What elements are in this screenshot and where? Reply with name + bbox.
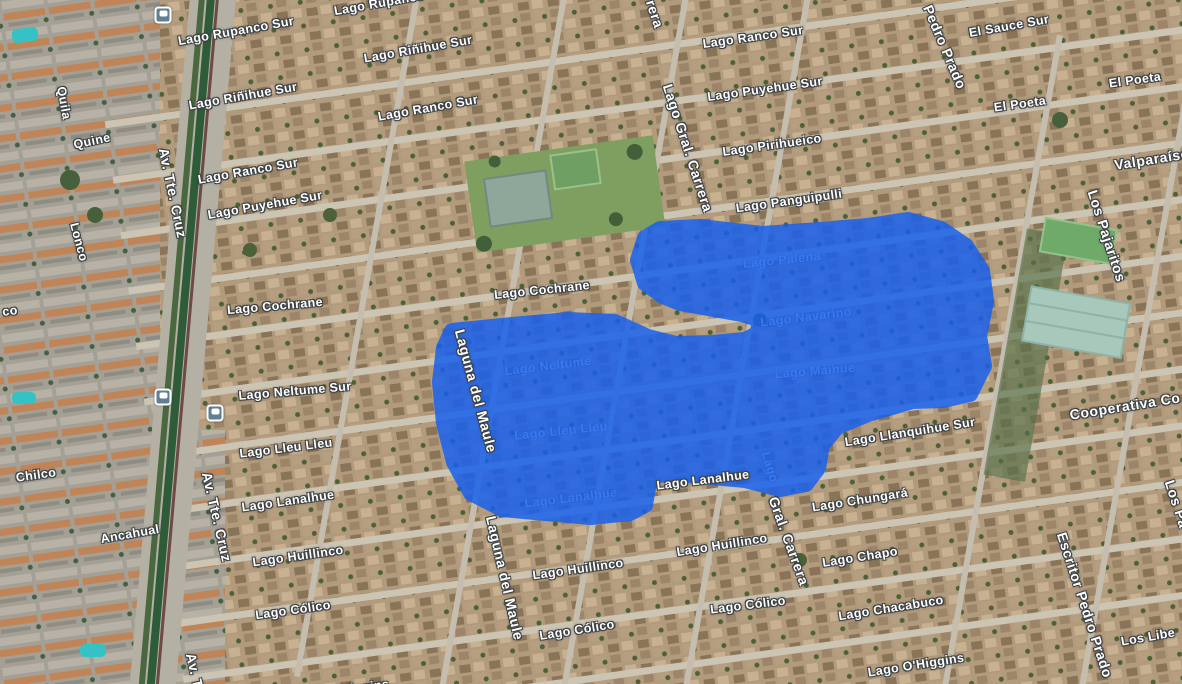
bus-stop-icon[interactable]: [155, 389, 172, 406]
bus-stop-icon[interactable]: [207, 405, 224, 422]
satellite-map[interactable]: LagoLago PalenaLago NavarinoLago MaihueL…: [0, 0, 1182, 684]
transit-station-icon[interactable]: [155, 7, 172, 24]
highlighted-region-shape[interactable]: [440, 220, 986, 517]
highlighted-region[interactable]: [0, 0, 1182, 684]
